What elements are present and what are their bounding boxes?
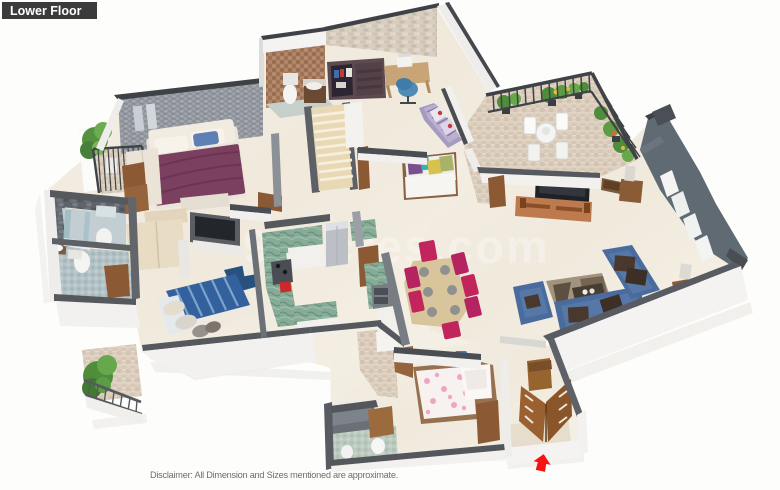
svg-text:Lower Floor: Lower Floor: [10, 4, 82, 18]
svg-text:Disclaimer: All Dimension and: Disclaimer: All Dimension and Sizes ment…: [150, 470, 398, 480]
